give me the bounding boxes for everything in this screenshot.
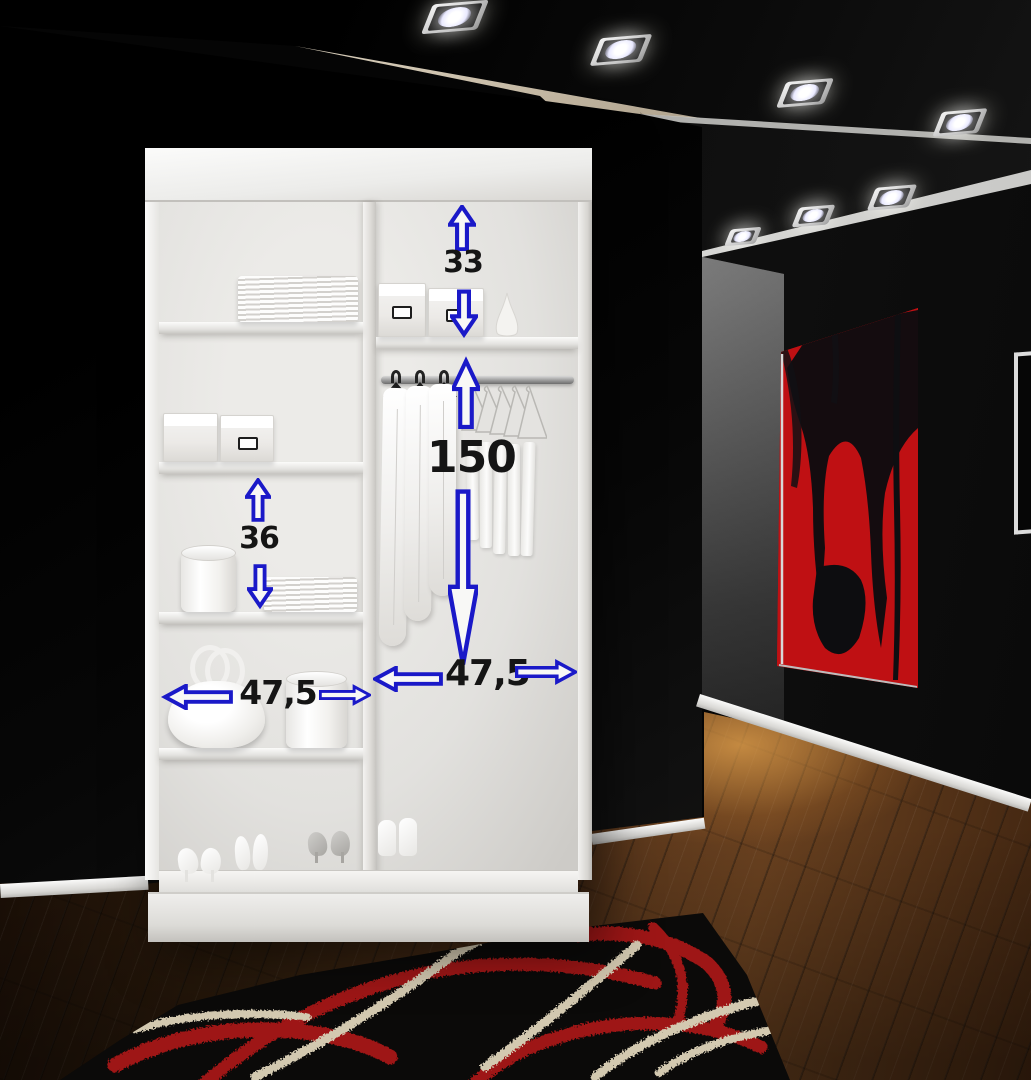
dim-right-width-left-arrow (373, 666, 443, 692)
wardrobe-divider (363, 202, 376, 880)
dim-33-down-arrow (450, 288, 478, 338)
abstract-painting (777, 308, 918, 692)
wardrobe-side-left (145, 202, 159, 880)
dim-36-label: 36 (231, 524, 287, 554)
dim-36-down-arrow (247, 558, 273, 614)
vase (490, 292, 524, 338)
dim-150-label: 150 (427, 436, 507, 480)
dim-left-width-left-arrow (160, 684, 236, 710)
hanger-hook-1 (391, 370, 401, 383)
shelf-left-4 (159, 748, 363, 760)
wardrobe-bottom-panel (159, 870, 578, 892)
wardrobe-side-right (578, 202, 592, 880)
dim-left-width-right-arrow (319, 682, 371, 708)
painting-canvas (777, 308, 918, 692)
shelf-left-1 (159, 322, 363, 334)
shelf-right-1 (376, 337, 578, 349)
dim-right-width-label: 47,5 (445, 656, 515, 692)
dim-150-up-arrow (452, 354, 480, 434)
wardrobe-top-panel (145, 148, 592, 202)
box-label-2 (392, 306, 412, 319)
wardrobe-plinth (148, 892, 589, 942)
box-label (238, 437, 258, 450)
dim-150-down-arrow (448, 482, 478, 674)
shelf-left-2 (159, 462, 363, 474)
wardrobe: 33 150 36 47,5 47,5 (145, 148, 592, 945)
storage-box-1 (163, 413, 218, 462)
canister (181, 552, 236, 612)
dim-36-up-arrow (245, 478, 271, 522)
dim-33-label: 33 (433, 248, 493, 278)
hanger-hook-2 (415, 370, 425, 383)
side-frame-partial (1014, 351, 1031, 534)
towel-stack-2 (264, 577, 357, 612)
towel-stack-1 (238, 276, 358, 322)
hanger-hook-3 (439, 370, 449, 383)
dim-right-width-right-arrow (515, 658, 577, 686)
room-scene: 33 150 36 47,5 47,5 (0, 0, 1031, 1080)
dim-left-width-label: 47,5 (239, 676, 317, 709)
